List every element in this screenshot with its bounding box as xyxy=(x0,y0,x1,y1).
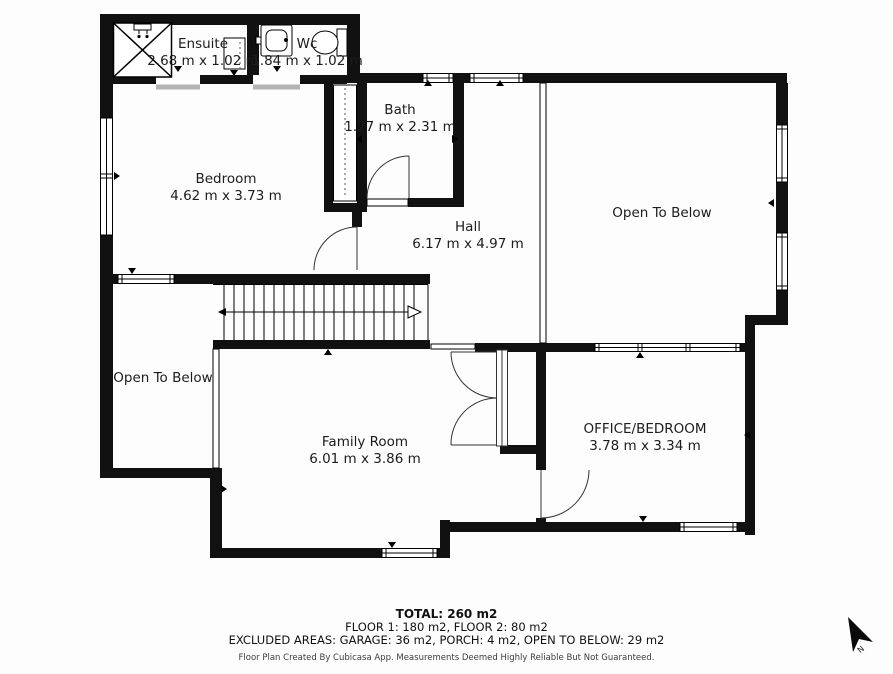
walls xyxy=(100,14,788,558)
staircase xyxy=(213,285,428,341)
window-open-below-right-1 xyxy=(777,125,788,182)
door-bedroom xyxy=(314,227,357,270)
room-dims: 4.62 m x 3.73 m xyxy=(170,188,282,205)
window-office-top xyxy=(595,344,740,352)
room-name: Ensuite xyxy=(147,36,259,53)
double-door-family-room xyxy=(451,350,508,446)
door-office xyxy=(541,470,589,518)
window-open-below-right-2 xyxy=(777,233,788,290)
room-dims: 3.78 m x 3.34 m xyxy=(583,438,706,455)
window-hall-top xyxy=(470,74,523,83)
room-name: Open To Below xyxy=(113,370,212,387)
room-name: Bedroom xyxy=(170,171,282,188)
room-name: OFFICE/BEDROOM xyxy=(583,421,706,438)
summary-excluded: EXCLUDED AREAS: GARAGE: 36 m2, PORCH: 4 … xyxy=(0,634,893,647)
room-label-office-bedroom: OFFICE/BEDROOM 3.78 m x 3.34 m xyxy=(583,421,706,454)
room-name: Family Room xyxy=(309,434,421,451)
room-dims: 1.84 m x 1.02 m xyxy=(251,53,363,70)
floor-plan-page: Ensuite 2.68 m x 1.02 m Wc 1.84 m x 1.02… xyxy=(0,0,893,674)
room-name: Bath xyxy=(344,102,456,119)
windows xyxy=(101,74,788,558)
thresholds xyxy=(156,85,300,90)
room-label-open-to-below-left: Open To Below xyxy=(113,370,212,387)
window-bedroom-left xyxy=(101,118,113,235)
room-name: Hall xyxy=(412,219,524,236)
room-name: Wc xyxy=(251,36,363,53)
room-label-wc: Wc 1.84 m x 1.02 m xyxy=(251,36,363,69)
room-label-hall: Hall 6.17 m x 4.97 m xyxy=(412,219,524,252)
app-credit: Floor Plan Created By Cubicasa App. Meas… xyxy=(0,653,893,663)
room-dims: 6.17 m x 4.97 m xyxy=(412,236,524,253)
window-family-bottom xyxy=(382,549,437,558)
room-label-family-room: Family Room 6.01 m x 3.86 m xyxy=(309,434,421,467)
room-label-open-to-below-right: Open To Below xyxy=(612,205,711,222)
window-office-bottom xyxy=(680,523,737,532)
room-dims: 2.68 m x 1.02 m xyxy=(147,53,259,70)
window-bedroom-bottom xyxy=(118,275,174,284)
room-label-bath: Bath 1.77 m x 2.31 m xyxy=(344,102,456,135)
stairs-direction-arrow xyxy=(218,306,421,318)
door-bath xyxy=(367,156,409,198)
room-label-bedroom: Bedroom 4.62 m x 3.73 m xyxy=(170,171,282,204)
area-summary: TOTAL: 260 m2 FLOOR 1: 180 m2, FLOOR 2: … xyxy=(0,608,893,663)
room-name: Open To Below xyxy=(612,205,711,222)
room-dims: 1.77 m x 2.31 m xyxy=(344,119,456,136)
room-dims: 6.01 m x 3.86 m xyxy=(309,451,421,468)
room-label-ensuite: Ensuite 2.68 m x 1.02 m xyxy=(147,36,259,69)
